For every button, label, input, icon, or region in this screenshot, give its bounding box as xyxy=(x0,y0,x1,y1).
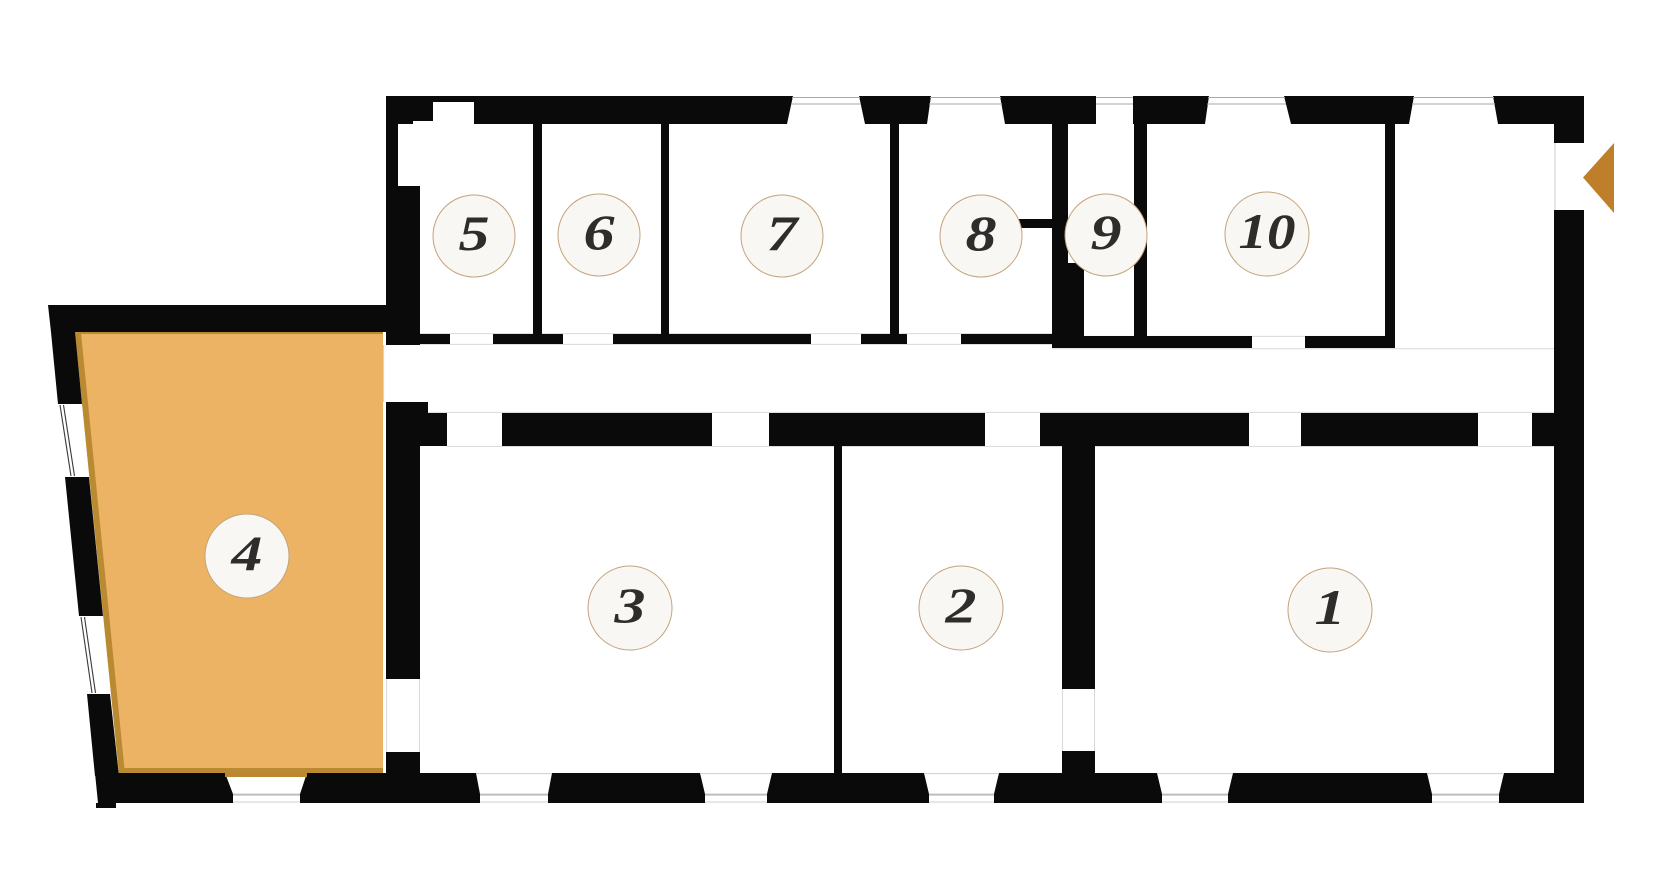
svg-text:5: 5 xyxy=(459,205,490,261)
svg-text:9: 9 xyxy=(1091,204,1122,260)
svg-text:4: 4 xyxy=(230,525,262,581)
svg-text:1: 1 xyxy=(1315,579,1346,635)
svg-text:7: 7 xyxy=(767,205,800,261)
svg-text:8: 8 xyxy=(966,205,997,261)
svg-text:2: 2 xyxy=(944,577,976,633)
svg-text:10: 10 xyxy=(1239,203,1296,259)
svg-text:3: 3 xyxy=(613,577,645,633)
svg-text:6: 6 xyxy=(584,204,615,260)
